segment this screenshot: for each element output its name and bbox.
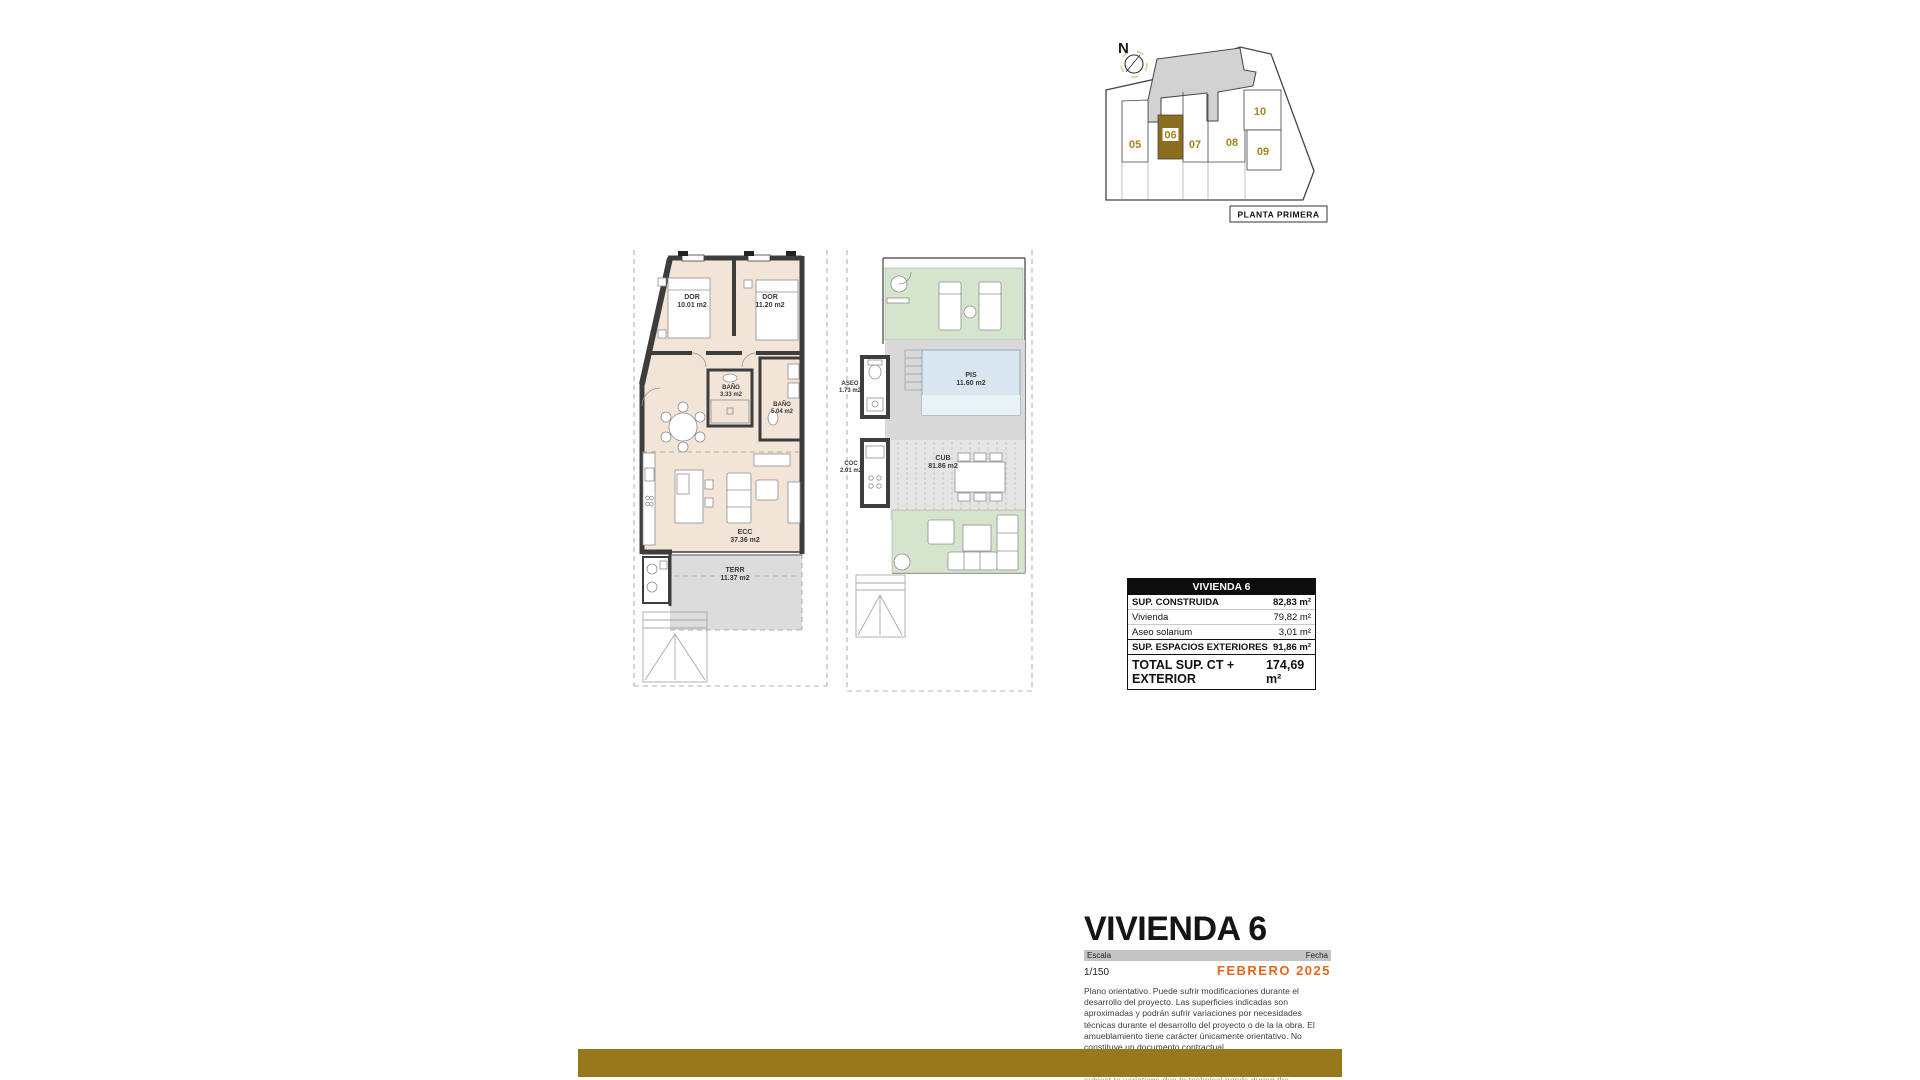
table-row: Vivienda 79,82 m²	[1128, 609, 1315, 624]
utility-room	[643, 557, 669, 603]
scale-date-bar: Escala Fecha	[1084, 950, 1331, 961]
armchair	[756, 480, 778, 500]
solarium-lounge	[892, 510, 1025, 573]
compass-n-label: N	[1118, 40, 1129, 57]
pool-steps	[905, 350, 922, 390]
room-label-bano1: BAÑO	[722, 384, 740, 391]
svg-text:10.01 m2: 10.01 m2	[677, 302, 707, 309]
outdoor-dining-table	[955, 453, 1005, 501]
floor-plan-main: DOR 10.01 m2 DOR 11.20 m2 BAÑO 3.33 m2 B…	[630, 246, 835, 691]
svg-text:11.20 m2: 11.20 m2	[755, 302, 784, 309]
room-label-pis: PIS	[965, 372, 977, 379]
solarium-coc: COC 2.01 m2	[840, 438, 890, 508]
room-label-cub: CUB	[935, 455, 950, 462]
terrace-floor	[670, 554, 802, 630]
table-row-total: TOTAL SUP. CT + EXTERIOR 174,69 m²	[1128, 654, 1315, 689]
north-compass-icon: N	[1118, 40, 1147, 77]
svg-text:81.86 m2: 81.86 m2	[928, 463, 958, 470]
unit-label-05: 05	[1129, 139, 1141, 151]
tv-unit	[754, 454, 790, 466]
stairs-roof	[856, 575, 905, 637]
svg-text:2.01 m2: 2.01 m2	[840, 468, 863, 474]
kitchen-counter	[643, 453, 655, 545]
footer-accent-bar	[578, 1049, 1342, 1077]
scale-label: Escala	[1087, 951, 1111, 960]
svg-text:3.33 m2: 3.33 m2	[720, 392, 743, 398]
svg-text:37.36 m2: 37.36 m2	[730, 537, 760, 544]
room-label-dor1: DOR	[684, 294, 700, 301]
surface-summary-table: VIVIENDA 6 SUP. CONSTRUIDA 82,83 m² Vivi…	[1127, 578, 1316, 690]
room-label-terr: TERR	[725, 567, 744, 574]
site-location-diagram: 05 06 07 08 09 10 N PLANTA PRIMERA	[1090, 22, 1350, 237]
unit-label-08: 08	[1226, 137, 1238, 149]
unit-label-06: 06	[1164, 130, 1176, 142]
room-label-ecc: ECC	[738, 529, 753, 536]
unit-label-07: 07	[1189, 139, 1201, 151]
floor-plan-solarium: PIS 11.60 m2 ASEO 1.73 m2 COC 2.01 m2	[843, 246, 1048, 706]
unit-label-09: 09	[1257, 146, 1269, 158]
room-label-coc: COC	[844, 461, 858, 467]
sofa	[727, 473, 751, 523]
room-label-dor2: DOR	[762, 294, 778, 301]
scale-value: 1/150	[1084, 967, 1109, 978]
room-label-bano2: BAÑO	[773, 401, 791, 408]
table-header: VIVIENDA 6	[1128, 579, 1315, 595]
svg-text:11.60 m2: 11.60 m2	[956, 380, 985, 387]
svg-text:1.73 m2: 1.73 m2	[839, 388, 862, 394]
date-label: Fecha	[1306, 951, 1328, 960]
side-shelf	[788, 482, 800, 523]
svg-text:5.04 m2: 5.04 m2	[771, 409, 794, 415]
sheet-title: VIVIENDA 6	[1084, 912, 1331, 946]
svg-text:PLANTA PRIMERA: PLANTA PRIMERA	[1237, 210, 1319, 220]
plan-sheet: 05 06 07 08 09 10 N PLANTA PRIMERA	[0, 0, 1920, 1080]
date-value: FEBRERO 2025	[1217, 963, 1331, 978]
room-label-aseo: ASEO	[841, 381, 858, 387]
table-row: Aseo solarium 3,01 m²	[1128, 624, 1315, 639]
swimming-pool: PIS 11.60 m2	[922, 350, 1020, 415]
svg-text:11.37 m2: 11.37 m2	[720, 575, 749, 582]
planta-primera-caption: PLANTA PRIMERA	[1230, 206, 1327, 222]
table-row: SUP. ESPACIOS EXTERIORES 91,86 m²	[1128, 639, 1315, 654]
unit-label-10: 10	[1254, 106, 1266, 118]
disclaimer-es: Plano orientativo. Puede sufrir modifica…	[1084, 986, 1331, 1053]
table-row: SUP. CONSTRUIDA 82,83 m²	[1128, 595, 1315, 609]
pergola-area: CUB 81.86 m2	[890, 440, 1025, 520]
